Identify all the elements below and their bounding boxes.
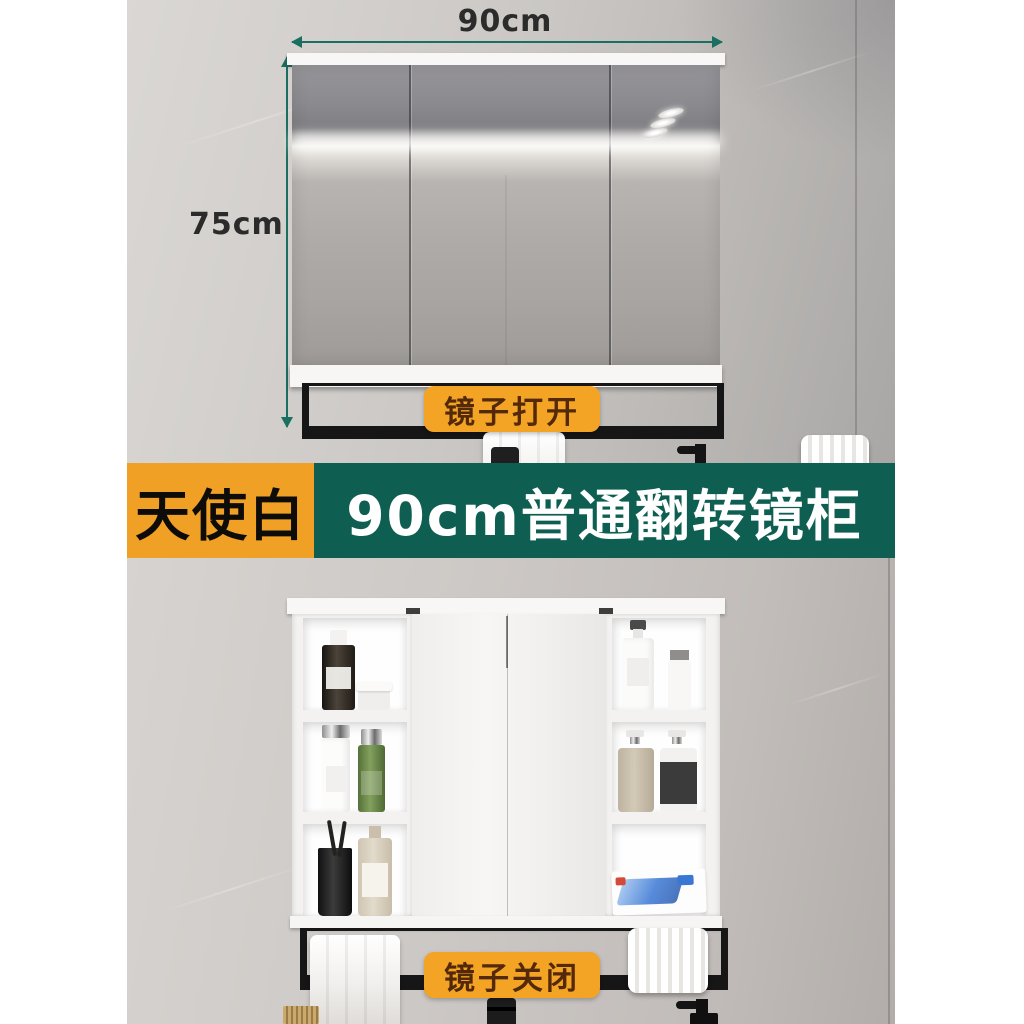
cabinet-bottom-board <box>290 916 722 928</box>
bottle-cap <box>670 650 689 660</box>
white-lotion-bottle <box>322 738 350 812</box>
marble-vein <box>789 673 885 706</box>
tall-spray-bottle <box>622 638 654 710</box>
width-dimension-arrow <box>292 41 722 43</box>
tan-soap-bottle <box>358 838 392 916</box>
product-image-canvas: 90cm 75cm <box>0 0 1024 1024</box>
faucet-band <box>487 1007 516 1011</box>
product-title: 90cm普通翻转镜柜 <box>314 463 895 558</box>
mirror-cabinet-open <box>290 598 722 972</box>
dark-perfume-bottle <box>322 645 355 710</box>
towel-folds <box>310 935 400 1024</box>
soap-dispenser-silhouette <box>677 442 711 463</box>
width-dimension-label: 90cm <box>425 4 585 39</box>
mirror-door-divider <box>409 65 411 365</box>
door-handle-groove <box>506 616 508 668</box>
dark-label-pump-bottle <box>660 748 697 812</box>
bottle-neck <box>633 629 643 638</box>
jar-lid <box>356 682 392 691</box>
bottle-label <box>362 863 388 897</box>
faucet-silhouette <box>491 447 519 463</box>
green-toner-bottle <box>358 745 385 812</box>
black-soap-dispenser <box>676 993 722 1024</box>
cabinet-doors <box>412 614 605 916</box>
tissue-box-artwork <box>616 877 683 905</box>
pump-head <box>626 730 644 737</box>
arrow-right-icon <box>712 36 723 48</box>
mirror-cabinet-closed <box>290 53 722 433</box>
bottle-label <box>660 762 697 804</box>
tile-joint-line <box>888 558 890 1024</box>
color-name-tag: 天使白 <box>127 463 314 558</box>
mirror-doors <box>292 65 720 365</box>
chrome-cap <box>361 729 382 745</box>
cosmetic-jar <box>358 682 390 710</box>
bottle-cap <box>330 630 347 645</box>
pump-top <box>369 826 381 838</box>
height-dimension-label: 75cm <box>189 207 279 242</box>
bottle-label <box>326 667 351 689</box>
product-photo: 90cm 75cm <box>127 0 895 1024</box>
mirror-door-divider <box>609 65 611 365</box>
arrow-left-icon <box>291 36 302 48</box>
small-white-bottle <box>668 660 691 710</box>
tissue-box-artwork <box>615 877 625 885</box>
dispenser-body <box>690 1013 718 1024</box>
dispenser-body <box>695 444 706 463</box>
folded-towel <box>628 928 708 993</box>
toothbrush-cup <box>318 848 352 916</box>
height-dimension-arrow <box>286 57 288 427</box>
pump-head <box>668 730 686 737</box>
door-track-stop <box>406 608 420 614</box>
cabinet-top-board <box>287 53 725 65</box>
cabinet-top-board <box>287 598 725 614</box>
door-track-stop <box>599 608 613 614</box>
chrome-cap <box>322 725 350 738</box>
tissue-box-artwork <box>677 875 693 886</box>
tissue-box <box>611 868 706 915</box>
shelf-cell <box>303 722 407 812</box>
dispenser-spout <box>676 1001 698 1009</box>
bottle-label <box>326 766 346 792</box>
bottle-label <box>627 658 649 686</box>
mirror-tile-joint-reflection <box>505 175 507 365</box>
bottle-label <box>361 771 382 795</box>
tile-joint-line <box>855 0 857 463</box>
title-banner: 天使白 90cm普通翻转镜柜 <box>127 463 895 558</box>
marble-vein <box>160 865 303 913</box>
mirror-closed-badge: 镜子关闭 <box>424 952 600 998</box>
shelf-cell <box>303 618 407 710</box>
black-faucet <box>487 998 516 1024</box>
khaki-pump-bottle <box>618 748 654 812</box>
wooden-brush <box>283 1006 319 1024</box>
led-glow-reflection <box>292 135 720 149</box>
mirror-open-badge: 镜子打开 <box>424 386 600 432</box>
hanging-towel <box>310 935 400 1024</box>
